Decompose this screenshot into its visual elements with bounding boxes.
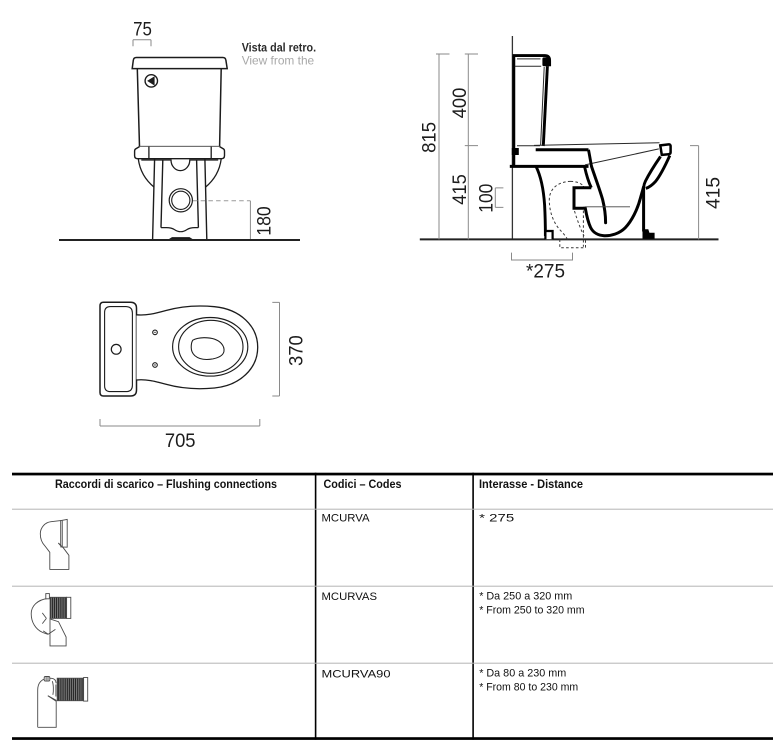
svg-text:Interasse - Distance: Interasse - Distance — [479, 477, 583, 491]
svg-text:815: 815 — [419, 122, 441, 153]
svg-text:Raccordi di scarico – Flushing: Raccordi di scarico – Flushing connectio… — [55, 477, 277, 491]
svg-text:415: 415 — [702, 177, 724, 209]
svg-text:* Da 250 a 320 mm: * Da 250 a 320 mm — [479, 591, 572, 603]
svg-text:400: 400 — [449, 88, 471, 119]
svg-text:705: 705 — [165, 430, 196, 452]
svg-text:View from the: View from the — [242, 54, 315, 68]
svg-text:* Da 80 a 230 mm: * Da 80 a 230 mm — [479, 668, 566, 680]
svg-text:180: 180 — [254, 206, 276, 236]
svg-text:* From 250 to 320 mm: * From 250 to 320 mm — [479, 605, 584, 617]
svg-text:MCURVA90: MCURVA90 — [322, 669, 391, 681]
svg-text:*275: *275 — [526, 261, 565, 283]
svg-text:370: 370 — [285, 335, 307, 366]
svg-text:100: 100 — [475, 184, 497, 213]
svg-text:* From 80 to 230 mm: * From 80 to 230 mm — [479, 682, 578, 694]
svg-text:415: 415 — [449, 174, 471, 205]
svg-text:MCURVA: MCURVA — [322, 513, 371, 525]
svg-text:* 275: * 275 — [479, 513, 514, 525]
svg-text:MCURVAS: MCURVAS — [322, 591, 378, 603]
svg-text:Codici – Codes: Codici – Codes — [324, 477, 402, 491]
svg-text:75: 75 — [133, 18, 152, 40]
svg-text:Vista dal retro.: Vista dal retro. — [242, 41, 316, 55]
